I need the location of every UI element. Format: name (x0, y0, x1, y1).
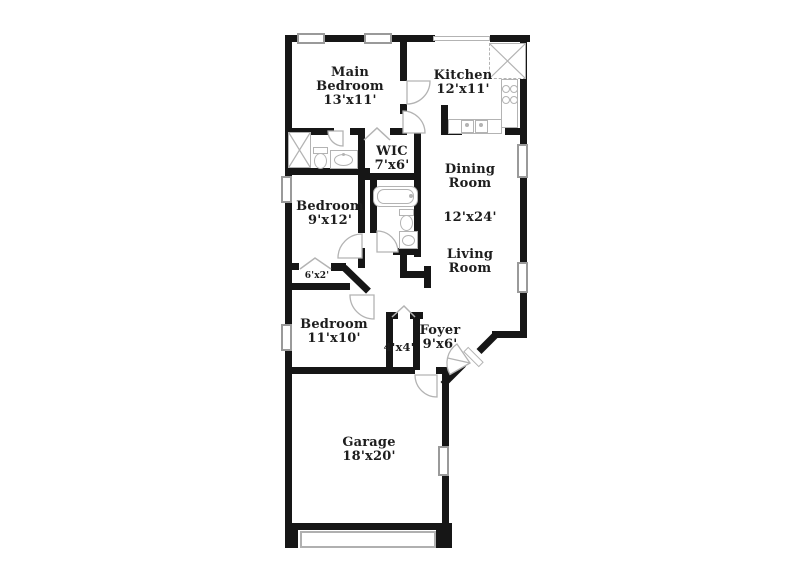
pantry-x-mark (490, 44, 525, 78)
bifold-door-hall-closet (300, 258, 331, 269)
bifold-door-foyer-closet (392, 306, 415, 317)
room-dimension: 12'x11' (434, 83, 493, 97)
door-arc (407, 81, 430, 104)
room-label-garage: Garage 18'x20' (342, 436, 395, 464)
room-name: Main (316, 66, 384, 80)
room-dimension: 7'x6' (375, 159, 410, 173)
room-name: Bedroom (300, 318, 368, 332)
room-name: Dining (445, 163, 495, 177)
room-name: Garage (342, 436, 395, 450)
door-arc (338, 234, 362, 258)
room-dimension: 6'x2' (305, 271, 329, 281)
room-dimension: 12'x24' (443, 211, 496, 225)
room-name: Kitchen (434, 69, 493, 83)
room-dimension: 9'x6' (420, 338, 461, 352)
door-arc (350, 295, 374, 319)
room-label-kitchen: Kitchen 12'x11' (434, 69, 493, 97)
shower-x-mark (289, 133, 310, 167)
room-dimension: 4'x4' (384, 341, 415, 353)
room-name: Foyer (420, 324, 461, 338)
room-dimension: 9'x12' (296, 214, 364, 228)
room-label-living-room: Living Room (447, 248, 493, 276)
room-name: Room (445, 177, 495, 191)
room-label-main-bedroom: Main Bedroom 13'x11' (316, 66, 384, 108)
room-label-bedroom-3: Bedroom 11'x10' (300, 318, 368, 346)
door-arc (377, 231, 398, 252)
door-arc (328, 131, 343, 146)
room-label-wic: WIC 7'x6' (375, 145, 410, 173)
room-label-dining-room: Dining Room (445, 163, 495, 191)
room-name: Bedroom (296, 200, 364, 214)
room-dimension: 18'x20' (342, 450, 395, 464)
room-label-bedroom-2: Bedroom 9'x12' (296, 200, 364, 228)
room-name: Living (447, 248, 493, 262)
door-overlay (0, 0, 809, 588)
room-dimension: 13'x11' (316, 94, 384, 108)
room-name: Room (447, 262, 493, 276)
foyer-closet-dimension: 4'x4' (384, 341, 415, 353)
door-arc (403, 111, 425, 133)
hall-closet-dimension: 6'x2' (305, 271, 329, 281)
door-arc (415, 375, 437, 397)
floor-plan: Main Bedroom 13'x11' Kitchen 12'x11' WIC… (0, 0, 809, 588)
dining-living-dimension: 12'x24' (443, 211, 496, 225)
room-dimension: 11'x10' (300, 332, 368, 346)
room-name: WIC (375, 145, 410, 159)
bifold-door-wic (364, 128, 390, 140)
room-name: Bedroom (316, 80, 384, 94)
room-label-foyer: Foyer 9'x6' (420, 324, 461, 352)
